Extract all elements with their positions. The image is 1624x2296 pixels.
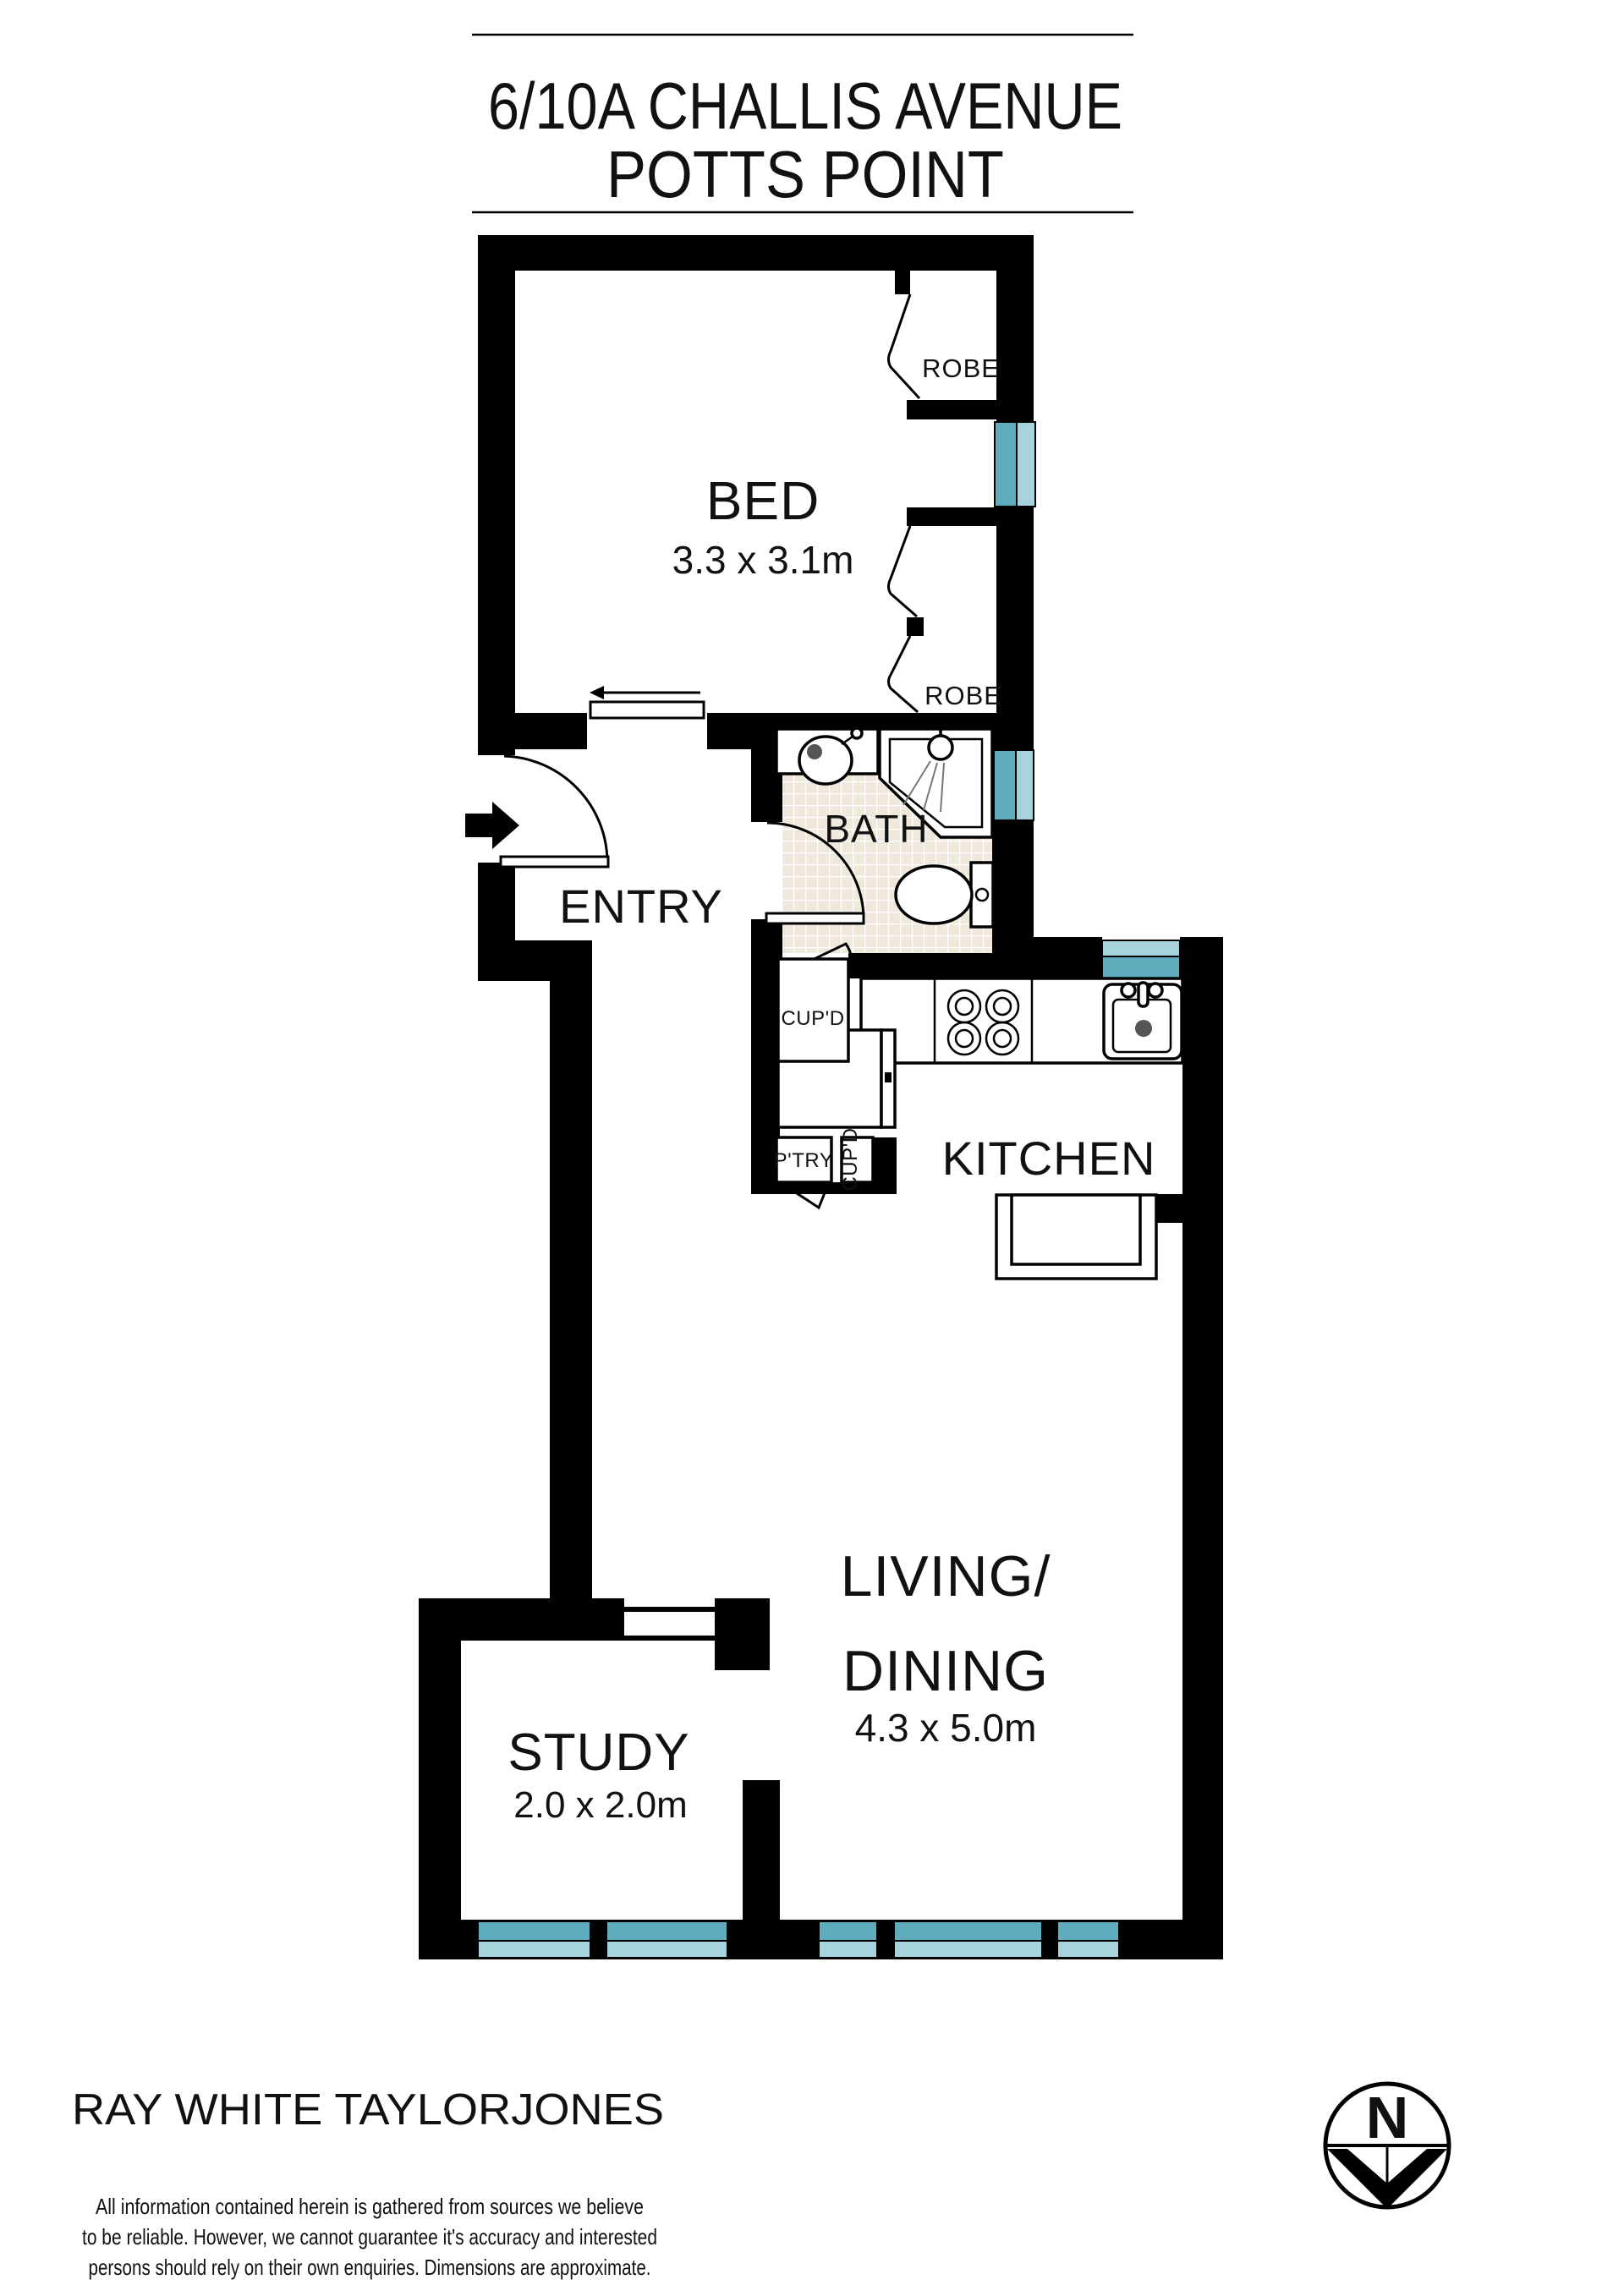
title-suburb: POTTS POINT <box>606 137 1004 211</box>
label-bed: BED <box>706 470 820 531</box>
title-address: 6/10A CHALLIS AVENUE <box>488 68 1122 143</box>
label-study: STUDY <box>507 1723 689 1782</box>
label-kitchen: KITCHEN <box>942 1132 1156 1185</box>
label-bed-dim: 3.3 x 3.1m <box>672 538 854 582</box>
label-robe-bottom: ROBE <box>924 681 1002 710</box>
label-living-dim: 4.3 x 5.0m <box>855 1706 1037 1750</box>
basin-drain-icon <box>807 744 822 759</box>
floorplan-page: 6/10A CHALLIS AVENUE POTTS POINT <box>0 0 1624 2296</box>
slide-direction-arrow-icon <box>590 686 604 699</box>
sink-drain-icon <box>1135 1020 1152 1037</box>
label-living-1: LIVING/ <box>841 1544 1051 1608</box>
label-cupboard-kitchen: CUP'D <box>839 1127 862 1191</box>
bath-window <box>994 750 1034 820</box>
label-robe-top: ROBE <box>922 353 1000 383</box>
agency-name: RAY WHITE TAYLORJONES <box>72 2085 664 2134</box>
title-block: 6/10A CHALLIS AVENUE POTTS POINT <box>472 35 1133 212</box>
fridge-handle-icon <box>885 1072 892 1082</box>
disclaimer-line-3: persons should rely on their own enquiri… <box>89 2255 651 2280</box>
disclaimer-line-1: All information contained herein is gath… <box>96 2194 644 2219</box>
label-pantry: P'TRY <box>774 1149 834 1172</box>
basin-tap-icon <box>852 728 862 738</box>
toilet <box>896 863 993 927</box>
floorplan: BED 3.3 x 3.1m ROBE ROBE ENTRY BATH CUP'… <box>419 235 1223 1959</box>
entry-arrow <box>465 802 519 849</box>
bed-sliding-door <box>590 686 704 718</box>
sink-tap-icon <box>1122 984 1135 997</box>
floorplan-canvas: 6/10A CHALLIS AVENUE POTTS POINT <box>0 0 1624 2296</box>
footer: RAY WHITE TAYLORJONES All information co… <box>72 2085 664 2280</box>
bed-window <box>995 422 1035 507</box>
kitchen-window <box>1102 940 1180 978</box>
compass-north-label: N <box>1366 2085 1409 2151</box>
kitchen-sink <box>1104 983 1182 1059</box>
entry-door <box>501 756 608 867</box>
north-compass: N <box>1325 2084 1449 2209</box>
robe-top-bifold-door <box>889 294 920 398</box>
label-entry: ENTRY <box>559 879 723 933</box>
disclaimer-line-2: to be reliable. However, we cannot guara… <box>82 2224 657 2249</box>
label-cupboard-bath: CUP'D <box>781 1007 844 1030</box>
label-study-dim: 2.0 x 2.0m <box>513 1784 687 1826</box>
label-living-2: DINING <box>842 1639 1049 1703</box>
sink-tap-icon <box>1149 984 1162 997</box>
study-opening <box>624 1598 715 1641</box>
entry-arrow-icon <box>492 802 519 849</box>
shower-head-icon <box>929 736 952 759</box>
sink-spout-icon <box>1138 983 1148 1006</box>
label-bath: BATH <box>824 807 928 851</box>
kitchen-bench <box>996 1195 1156 1279</box>
